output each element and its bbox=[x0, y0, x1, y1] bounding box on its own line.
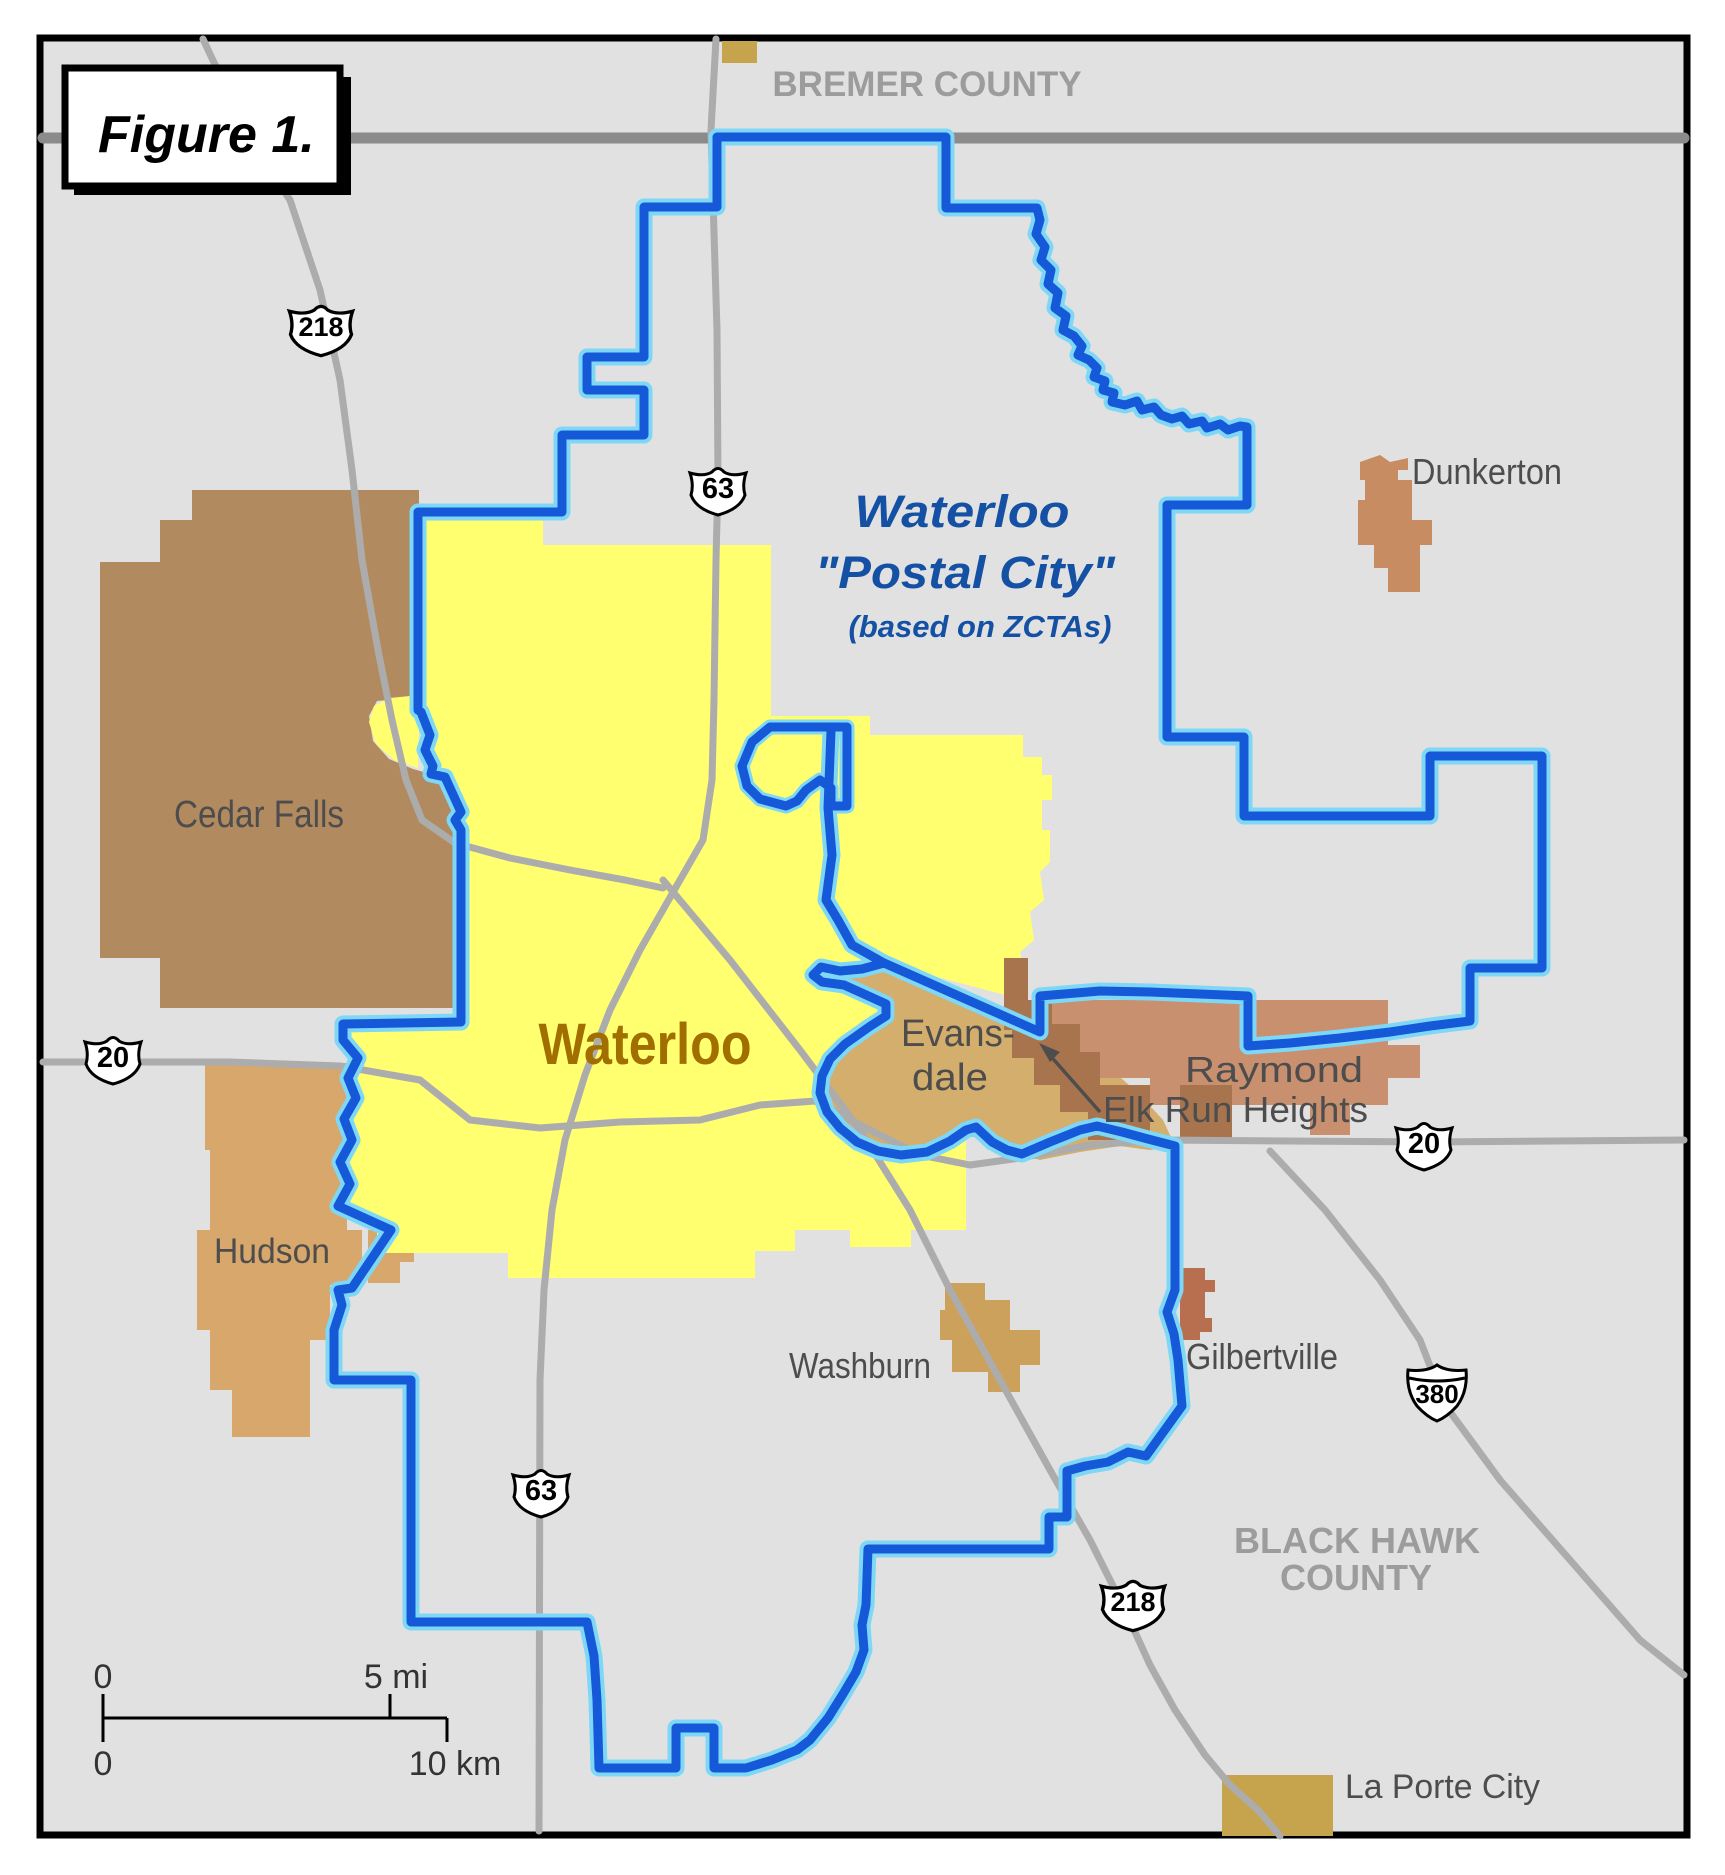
svg-text:0: 0 bbox=[94, 1745, 113, 1783]
svg-text:20: 20 bbox=[1408, 1128, 1440, 1160]
svg-text:10 km: 10 km bbox=[409, 1745, 502, 1783]
svg-text:Elk Run Heights: Elk Run Heights bbox=[1103, 1089, 1368, 1130]
svg-text:380: 380 bbox=[1415, 1379, 1458, 1409]
svg-text:20: 20 bbox=[97, 1042, 129, 1074]
svg-text:La Porte City: La Porte City bbox=[1345, 1768, 1540, 1806]
svg-text:(based on ZCTAs): (based on ZCTAs) bbox=[849, 609, 1112, 644]
svg-text:Figure 1.: Figure 1. bbox=[98, 106, 315, 164]
svg-text:218: 218 bbox=[298, 312, 343, 342]
svg-text:Hudson: Hudson bbox=[214, 1232, 330, 1271]
svg-text:BREMER COUNTY: BREMER COUNTY bbox=[772, 65, 1081, 104]
svg-text:218: 218 bbox=[1110, 1587, 1155, 1617]
svg-text:0: 0 bbox=[94, 1658, 113, 1696]
svg-text:5 mi: 5 mi bbox=[364, 1658, 428, 1696]
svg-text:Dunkerton: Dunkerton bbox=[1412, 451, 1562, 492]
svg-text:63: 63 bbox=[702, 473, 734, 505]
svg-text:Gilbertville: Gilbertville bbox=[1186, 1336, 1338, 1377]
svg-text:63: 63 bbox=[525, 1475, 557, 1507]
svg-text:"Postal City": "Postal City" bbox=[815, 547, 1116, 598]
svg-text:COUNTY: COUNTY bbox=[1280, 1557, 1432, 1598]
svg-text:Evans-: Evans- bbox=[901, 1013, 1015, 1055]
svg-text:Washburn: Washburn bbox=[789, 1345, 931, 1386]
svg-text:Raymond: Raymond bbox=[1185, 1049, 1363, 1090]
svg-text:Waterloo: Waterloo bbox=[855, 486, 1070, 537]
svg-text:Waterloo: Waterloo bbox=[539, 1012, 752, 1077]
svg-text:dale: dale bbox=[912, 1057, 988, 1099]
svg-text:Cedar Falls: Cedar Falls bbox=[174, 794, 344, 836]
svg-text:BLACK HAWK: BLACK HAWK bbox=[1234, 1520, 1480, 1561]
